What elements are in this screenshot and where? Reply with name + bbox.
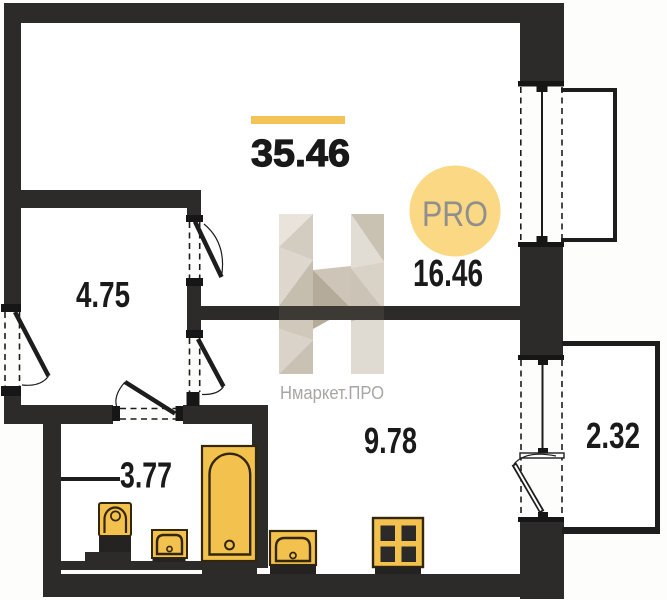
svg-text:35.46: 35.46 (251, 133, 350, 175)
svg-text:4.75: 4.75 (76, 274, 130, 315)
svg-text:Нмаркет.ПРО: Нмаркет.ПРО (280, 383, 384, 403)
svg-text:2.32: 2.32 (586, 415, 640, 456)
svg-text:PRO: PRO (422, 195, 488, 234)
svg-text:3.77: 3.77 (120, 455, 172, 496)
svg-text:16.46: 16.46 (413, 253, 483, 295)
svg-text:9.78: 9.78 (364, 420, 417, 461)
